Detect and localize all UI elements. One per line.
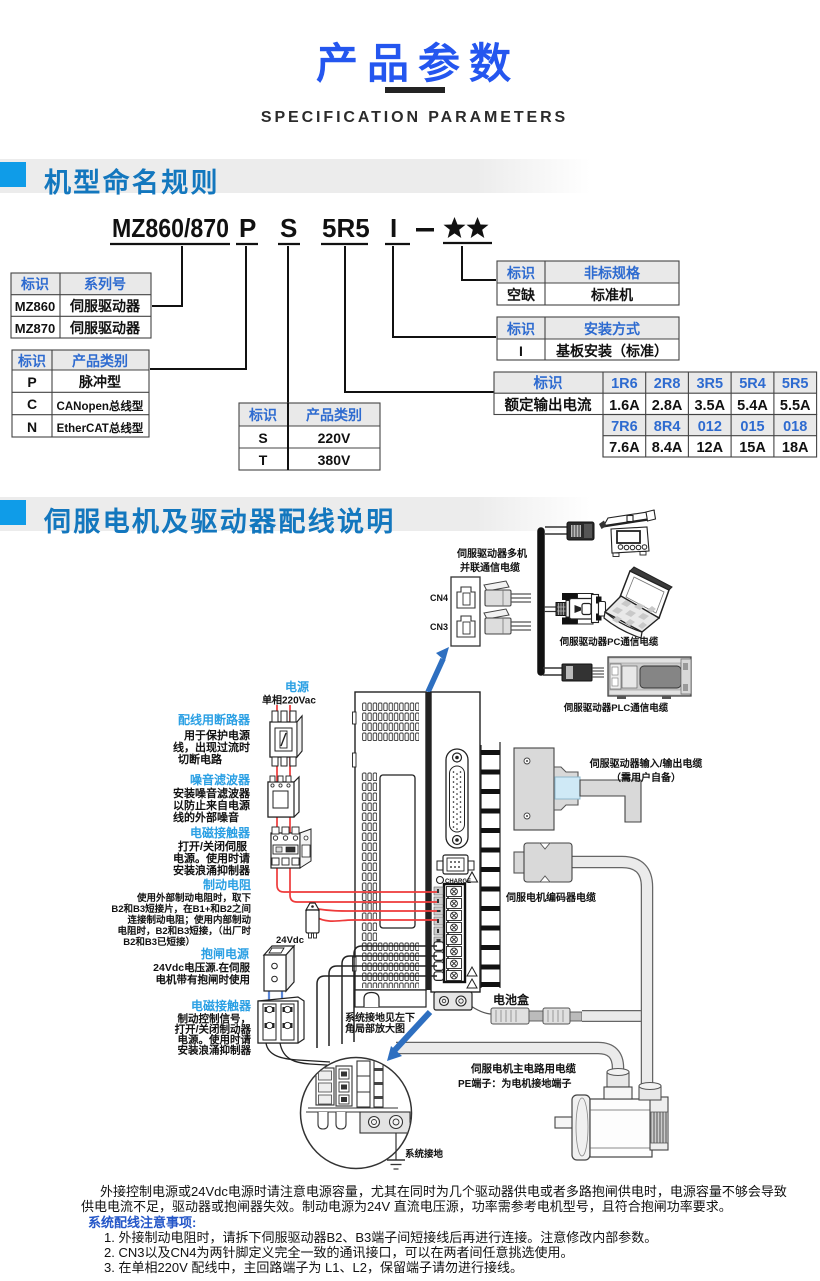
svg-text:T: T xyxy=(259,452,268,468)
svg-text:标识: 标识 xyxy=(506,265,535,281)
svg-text:7R6: 7R6 xyxy=(611,419,638,435)
svg-text:电磁接触器: 电磁接触器 xyxy=(191,998,252,1013)
svg-text:N: N xyxy=(27,419,37,435)
svg-text:安装浪涌抑制器: 安装浪涌抑制器 xyxy=(178,1044,252,1057)
svg-text:安装浪涌抑制器: 安装浪涌抑制器 xyxy=(173,863,251,877)
svg-text:5.4A: 5.4A xyxy=(737,398,768,414)
svg-text:电阻时，B2和B3短接，（出厂时: 电阻时，B2和B3短接，（出厂时 xyxy=(117,925,251,937)
svg-text:伺服驱动器多机: 伺服驱动器多机 xyxy=(456,547,527,560)
svg-text:单相220Vac: 单相220Vac xyxy=(262,694,316,707)
svg-text:伺服驱动器PLC通信电缆: 伺服驱动器PLC通信电缆 xyxy=(563,702,669,714)
svg-text:I: I xyxy=(390,213,397,243)
svg-text:标识: 标识 xyxy=(248,407,277,423)
svg-text:伺服驱动器: 伺服驱动器 xyxy=(69,298,141,314)
svg-text:脉冲型: 脉冲型 xyxy=(78,374,121,390)
svg-text:切断电路: 切断电路 xyxy=(178,752,223,766)
svg-text:以防止来自电源: 以防止来自电源 xyxy=(173,798,250,812)
svg-text:标识: 标识 xyxy=(533,374,563,392)
svg-text:B2和B3已短接）: B2和B3已短接） xyxy=(123,936,195,948)
svg-text:用于保护电源: 用于保护电源 xyxy=(184,728,250,742)
svg-text:5R5: 5R5 xyxy=(782,376,809,392)
svg-text:安装方式: 安装方式 xyxy=(584,321,640,337)
svg-text:3.5A: 3.5A xyxy=(694,398,725,414)
svg-text:电磁接触器: 电磁接触器 xyxy=(190,825,251,840)
svg-text:12A: 12A xyxy=(696,440,723,456)
svg-text:基板安装（标准）: 基板安装（标准） xyxy=(556,343,668,359)
svg-text:电池盒: 电池盒 xyxy=(493,992,530,1007)
svg-text:CN4: CN4 xyxy=(430,593,448,603)
svg-text:并联通信电缆: 并联通信电缆 xyxy=(460,561,520,574)
svg-text:产品类别: 产品类别 xyxy=(72,353,128,369)
svg-text:电源: 电源 xyxy=(285,679,309,694)
svg-text:MZ860: MZ860 xyxy=(15,299,55,314)
svg-text:空缺: 空缺 xyxy=(507,287,536,303)
svg-text:额定输出电流: 额定输出电流 xyxy=(505,396,592,414)
svg-text:（需用户自备）: （需用户自备） xyxy=(611,771,681,784)
svg-text:系统接地见左下: 系统接地见左下 xyxy=(345,1011,415,1024)
svg-text:伺服驱动器输入/输出电缆: 伺服驱动器输入/输出电缆 xyxy=(589,757,703,770)
svg-text:非标规格: 非标规格 xyxy=(584,265,641,281)
svg-text:24Vdc: 24Vdc xyxy=(276,935,304,946)
svg-text:CANopen总线型: CANopen总线型 xyxy=(57,399,144,413)
svg-text:5R4: 5R4 xyxy=(739,376,766,392)
svg-text:电机带有抱闸时使用: 电机带有抱闸时使用 xyxy=(156,973,251,986)
svg-text:P: P xyxy=(27,374,36,390)
svg-text:伺服电机主电路用电缆: 伺服电机主电路用电缆 xyxy=(470,1062,576,1075)
svg-text:线，出现过流时: 线，出现过流时 xyxy=(173,740,250,754)
svg-text:012: 012 xyxy=(698,419,722,435)
svg-text:系列号: 系列号 xyxy=(84,276,126,292)
svg-text:制动电阻: 制动电阻 xyxy=(203,877,251,892)
svg-text:标识: 标识 xyxy=(17,353,46,369)
svg-text:2R8: 2R8 xyxy=(654,376,681,392)
svg-text:标识: 标识 xyxy=(506,321,535,337)
svg-text:5R5: 5R5 xyxy=(322,213,370,243)
svg-text:伺服驱动器PC通信电缆: 伺服驱动器PC通信电缆 xyxy=(559,636,659,648)
svg-text:015: 015 xyxy=(740,419,764,435)
svg-text:8.4A: 8.4A xyxy=(652,440,683,456)
svg-text:安装噪音滤波器: 安装噪音滤波器 xyxy=(173,786,251,800)
svg-text:PE端子：为电机接地端子: PE端子：为电机接地端子 xyxy=(458,1077,571,1090)
svg-text:18A: 18A xyxy=(782,440,809,456)
svg-text:P: P xyxy=(239,213,256,243)
svg-text:伺服驱动器: 伺服驱动器 xyxy=(69,320,141,336)
svg-text:S: S xyxy=(258,430,267,446)
svg-text:220V: 220V xyxy=(318,430,351,446)
svg-text:MZ870: MZ870 xyxy=(15,321,55,336)
svg-text:C: C xyxy=(27,396,37,412)
svg-text:角局部放大图: 角局部放大图 xyxy=(345,1022,405,1035)
svg-text:S: S xyxy=(280,213,297,243)
svg-text:1R6: 1R6 xyxy=(611,376,638,392)
svg-text:抱闸电源: 抱闸电源 xyxy=(201,946,249,961)
svg-text:3R5: 3R5 xyxy=(696,376,723,392)
svg-text:产品类别: 产品类别 xyxy=(306,407,362,423)
svg-text:EtherCAT总线型: EtherCAT总线型 xyxy=(57,421,144,435)
svg-text:2.8A: 2.8A xyxy=(652,398,683,414)
svg-text:15A: 15A xyxy=(739,440,766,456)
svg-text:打开/关闭伺服: 打开/关闭伺服 xyxy=(178,839,248,853)
svg-text:24Vdc电压源.在伺服: 24Vdc电压源.在伺服 xyxy=(153,961,250,974)
svg-text:伺服电机编码器电缆: 伺服电机编码器电缆 xyxy=(505,891,596,904)
svg-text:380V: 380V xyxy=(318,452,351,468)
svg-text:7.6A: 7.6A xyxy=(609,440,640,456)
svg-text:标准机: 标准机 xyxy=(590,287,633,303)
svg-text:B2和B3短接片，在B1+和B2之间: B2和B3短接片，在B1+和B2之间 xyxy=(111,903,251,915)
svg-text:线的外部噪音: 线的外部噪音 xyxy=(173,810,239,824)
svg-text:1.6A: 1.6A xyxy=(609,398,640,414)
svg-text:电源。使用时请: 电源。使用时请 xyxy=(173,851,250,865)
svg-text:使用外部制动电阻时，取下: 使用外部制动电阻时，取下 xyxy=(136,892,252,904)
svg-text:连接制动电阻；使用内部制动: 连接制动电阻；使用内部制动 xyxy=(127,914,251,926)
svg-text:系统接地: 系统接地 xyxy=(405,1148,444,1160)
svg-text:配线用断路器: 配线用断路器 xyxy=(178,712,251,727)
svg-text:018: 018 xyxy=(783,419,807,435)
svg-text:标识: 标识 xyxy=(20,276,49,292)
svg-text:I: I xyxy=(519,343,523,359)
svg-text:8R4: 8R4 xyxy=(654,419,681,435)
svg-text:MZ860/870: MZ860/870 xyxy=(112,213,229,243)
svg-text:噪音滤波器: 噪音滤波器 xyxy=(190,772,251,787)
svg-text:CN3: CN3 xyxy=(430,622,448,632)
svg-text:5.5A: 5.5A xyxy=(780,398,811,414)
